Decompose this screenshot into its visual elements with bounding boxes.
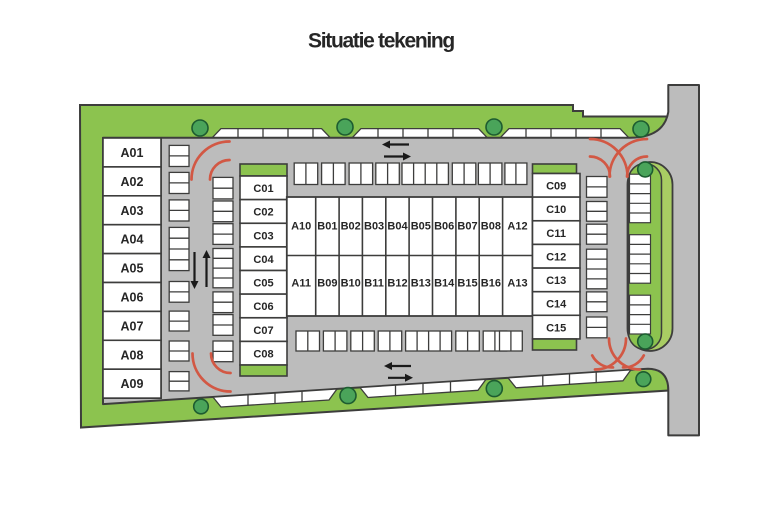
svg-text:C01: C01 <box>253 183 273 195</box>
svg-text:A02: A02 <box>121 175 144 189</box>
svg-text:B14: B14 <box>434 278 455 290</box>
svg-text:C08: C08 <box>253 348 273 360</box>
svg-text:B03: B03 <box>364 221 384 233</box>
svg-text:C11: C11 <box>546 228 566 240</box>
svg-text:B15: B15 <box>457 278 477 290</box>
svg-text:B08: B08 <box>481 221 501 233</box>
svg-text:C10: C10 <box>546 204 566 216</box>
svg-text:B02: B02 <box>341 221 361 233</box>
svg-text:C04: C04 <box>253 254 274 266</box>
svg-text:A05: A05 <box>121 262 144 276</box>
svg-text:B07: B07 <box>457 221 477 233</box>
svg-text:C06: C06 <box>253 301 273 313</box>
svg-text:A08: A08 <box>121 348 144 362</box>
svg-text:C02: C02 <box>253 207 273 219</box>
svg-text:A07: A07 <box>121 319 144 333</box>
svg-text:B10: B10 <box>341 278 361 290</box>
svg-text:B16: B16 <box>481 278 501 290</box>
svg-text:C14: C14 <box>546 299 567 311</box>
svg-text:A09: A09 <box>121 377 144 391</box>
svg-text:A11: A11 <box>291 278 311 290</box>
svg-text:B09: B09 <box>317 278 337 290</box>
svg-text:B11: B11 <box>364 278 384 290</box>
svg-text:A04: A04 <box>121 233 144 247</box>
svg-text:C15: C15 <box>546 322 566 334</box>
svg-text:Situatie tekening: Situatie tekening <box>308 30 454 53</box>
svg-text:C07: C07 <box>253 325 273 337</box>
svg-text:C13: C13 <box>546 275 566 287</box>
svg-text:C12: C12 <box>546 251 566 263</box>
svg-text:A12: A12 <box>507 221 527 233</box>
svg-text:A01: A01 <box>121 146 144 160</box>
svg-text:B06: B06 <box>434 221 454 233</box>
svg-text:B05: B05 <box>411 221 431 233</box>
svg-text:B04: B04 <box>387 221 408 233</box>
svg-text:B12: B12 <box>387 278 407 290</box>
svg-text:C03: C03 <box>253 230 273 242</box>
svg-text:A06: A06 <box>121 291 144 305</box>
svg-text:C09: C09 <box>546 181 566 193</box>
svg-text:C05: C05 <box>253 278 273 290</box>
svg-text:A10: A10 <box>291 221 311 233</box>
svg-text:B13: B13 <box>411 278 431 290</box>
svg-text:B01: B01 <box>317 221 337 233</box>
svg-text:A13: A13 <box>507 278 527 290</box>
svg-text:A03: A03 <box>121 204 144 218</box>
